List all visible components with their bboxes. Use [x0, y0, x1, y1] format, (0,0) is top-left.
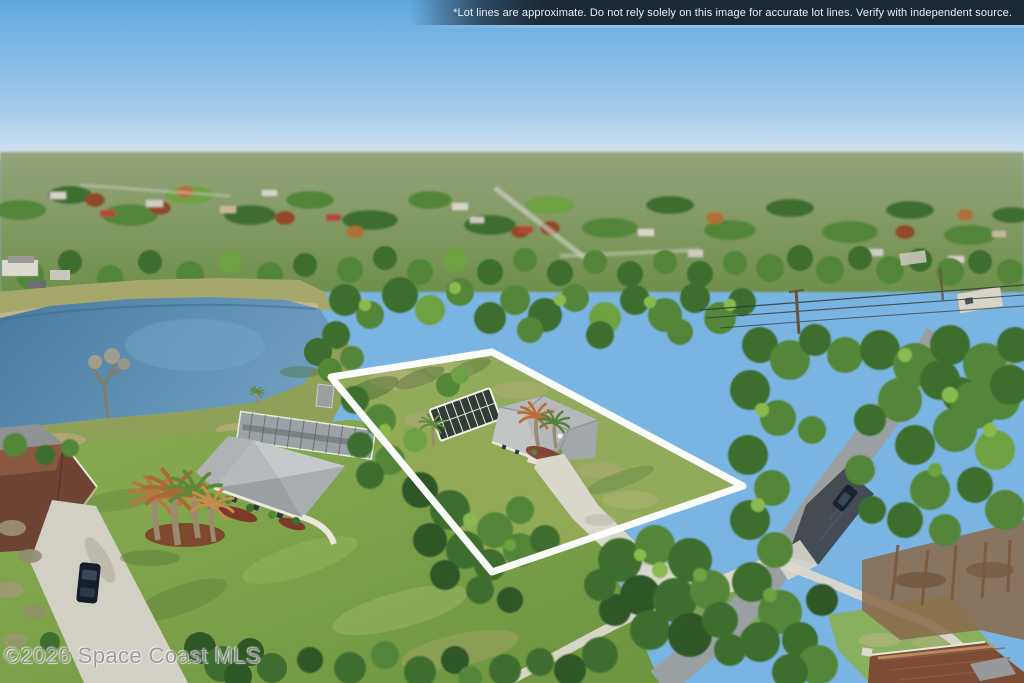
disclaimer-text: *Lot lines are approximate. Do not rely …: [453, 7, 1012, 19]
aerial-listing-photo: *Lot lines are approximate. Do not rely …: [0, 0, 1024, 683]
disclaimer-banner: *Lot lines are approximate. Do not rely …: [0, 0, 1024, 25]
aerial-scene: [0, 0, 1024, 683]
lake-glint: [125, 319, 265, 371]
mls-watermark: ©2026 Space Coast MLS: [4, 643, 261, 669]
utility-pole: [796, 290, 799, 334]
driveway-car: [76, 562, 101, 604]
lakeside-shed: [316, 384, 334, 408]
